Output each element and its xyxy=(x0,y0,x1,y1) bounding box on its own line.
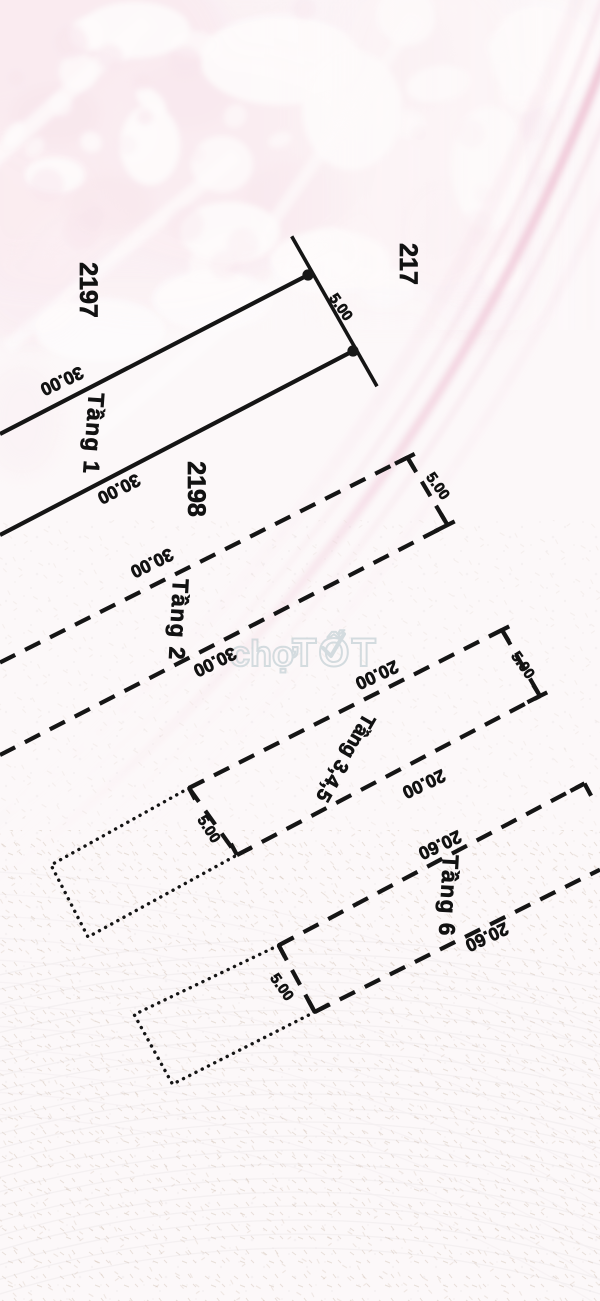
svg-text:chợ: chợ xyxy=(230,633,298,674)
svg-text:2197: 2197 xyxy=(74,262,102,318)
svg-text:Tầng 2: Tầng 2 xyxy=(164,578,193,661)
svg-text:2198: 2198 xyxy=(182,461,210,517)
svg-text:Tầng 6: Tầng 6 xyxy=(434,854,463,937)
svg-text:217: 217 xyxy=(394,243,422,285)
